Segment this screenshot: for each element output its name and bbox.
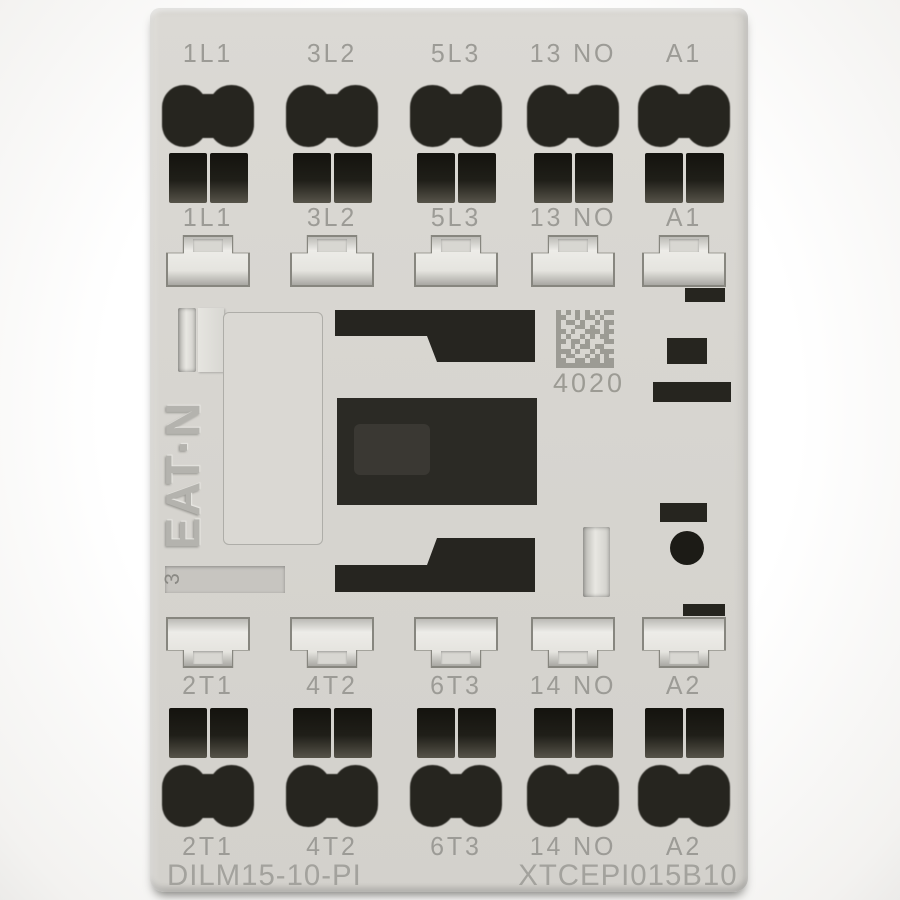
top-clip-labels-row: 1L1 3L2 5L3 13 NO A1: [150, 202, 748, 232]
push-in-opening: [686, 708, 724, 758]
clip-label-2t1: 2T1: [164, 670, 252, 700]
push-in-opening: [417, 708, 455, 758]
push-in-opening: [645, 153, 683, 203]
top-release-openings-row: [150, 153, 748, 203]
push-in-opening: [210, 153, 248, 203]
vent-mark: [660, 503, 707, 522]
terminal-label-a2: A2: [640, 831, 728, 861]
terminal-hole-pair: [638, 765, 730, 827]
bottom-conductor-holes-row: [150, 765, 748, 827]
push-in-opening: [293, 708, 331, 758]
clip-label-4t2: 4T2: [288, 670, 376, 700]
bottom-clip-labels-row: 2T1 4T2 6T3 14 NO A2: [150, 670, 748, 700]
hole-shape: [559, 94, 587, 138]
hole-shape: [559, 774, 587, 818]
hole-shape: [670, 94, 698, 138]
clip-notch: [441, 239, 471, 252]
terminal-release-clip: [531, 617, 615, 668]
terminal-label-6t3: 6T3: [412, 831, 500, 861]
vent-mark: [683, 604, 725, 616]
push-in-opening: [575, 153, 613, 203]
push-in-opening: [534, 153, 572, 203]
push-in-opening: [334, 708, 372, 758]
terminal-hole-pair: [410, 85, 502, 147]
data-matrix-code: [556, 310, 614, 368]
push-in-opening: [210, 708, 248, 758]
clip-notch: [317, 651, 347, 664]
terminal-release-clip: [414, 235, 498, 287]
hole-shape: [442, 774, 470, 818]
terminal-release-clip: [414, 617, 498, 668]
vent-mark: [685, 288, 725, 302]
push-in-opening: [645, 708, 683, 758]
marker-strip: 3: [165, 566, 285, 593]
terminal-hole-pair: [286, 85, 378, 147]
clip-notch: [193, 651, 223, 664]
marker-label: 3: [161, 573, 185, 585]
terminal-release-clip: [531, 235, 615, 287]
terminal-hole-pair: [527, 85, 619, 147]
clip-label-a1: A1: [640, 202, 728, 232]
clip-label-5l3: 5L3: [412, 202, 500, 232]
terminal-release-clip: [166, 617, 250, 668]
terminal-label-1l1: 1L1: [164, 38, 252, 68]
terminal-label-5l3: 5L3: [412, 38, 500, 68]
push-in-opening: [169, 153, 207, 203]
push-in-opening: [458, 708, 496, 758]
hole-shape: [194, 774, 222, 818]
clip-label-13no: 13 NO: [529, 202, 617, 232]
push-in-opening: [686, 153, 724, 203]
bottom-terminal-labels-row: 2T1 4T2 6T3 14 NO A2: [150, 831, 748, 859]
clip-notch: [441, 651, 471, 664]
bottom-clips-row: [150, 617, 748, 668]
clip-notch: [558, 239, 588, 252]
terminal-release-clip: [642, 617, 726, 668]
center-window: [337, 398, 537, 505]
terminal-hole-pair: [162, 85, 254, 147]
terminal-hole-pair: [286, 765, 378, 827]
arc-chute-slot-bottom: [335, 538, 535, 592]
center-window-inset: [354, 424, 430, 475]
push-in-opening: [169, 708, 207, 758]
terminal-hole-pair: [638, 85, 730, 147]
vent-slot: [178, 308, 196, 372]
push-in-opening: [293, 153, 331, 203]
top-conductor-holes-row: [150, 85, 748, 147]
terminal-label-2t1: 2T1: [164, 831, 252, 861]
clip-notch: [193, 239, 223, 252]
top-terminal-labels-row: 1L1 3L2 5L3 13 NO A1: [150, 38, 748, 68]
terminal-label-a1: A1: [640, 38, 728, 68]
catalog-number: XTCEPI015B10: [518, 859, 737, 893]
contactor-body: 1L1 3L2 5L3 13 NO A1 1L1 3L2 5L3 1: [150, 8, 748, 892]
nameplate-area: [223, 312, 323, 545]
photo-background: 1L1 3L2 5L3 13 NO A1 1L1 3L2 5L3 1: [0, 0, 900, 900]
clip-label-a2: A2: [640, 670, 728, 700]
molded-tab: [198, 308, 224, 372]
arc-chute-slot-top: [335, 310, 535, 362]
hole-shape: [670, 774, 698, 818]
clip-notch: [669, 239, 699, 252]
clip-notch: [669, 651, 699, 664]
clip-notch: [558, 651, 588, 664]
clip-notch: [317, 239, 347, 252]
vent-mark: [667, 338, 707, 364]
push-in-opening: [417, 153, 455, 203]
hole-shape: [318, 94, 346, 138]
vent-slot: [583, 527, 610, 597]
dmc-number: 4020: [553, 368, 625, 399]
bottom-release-openings-row: [150, 708, 748, 758]
vent-mark: [653, 382, 731, 402]
terminal-release-clip: [642, 235, 726, 287]
push-in-opening: [458, 153, 496, 203]
push-in-opening: [334, 153, 372, 203]
brand-logo-text: EAT·N: [157, 401, 212, 549]
clip-label-3l2: 3L2: [288, 202, 376, 232]
hole-shape: [442, 94, 470, 138]
terminal-label-13no: 13 NO: [529, 38, 617, 68]
terminal-label-14no: 14 NO: [529, 831, 617, 861]
terminal-hole-pair: [162, 765, 254, 827]
top-clips-row: [150, 235, 748, 287]
model-number: DILM15-10-PI: [167, 859, 362, 893]
terminal-label-4t2: 4T2: [288, 831, 376, 861]
clip-label-6t3: 6T3: [412, 670, 500, 700]
terminal-release-clip: [166, 235, 250, 287]
terminal-hole-pair: [410, 765, 502, 827]
terminal-release-clip: [290, 235, 374, 287]
push-in-opening: [575, 708, 613, 758]
hole-shape: [318, 774, 346, 818]
clip-label-14no: 14 NO: [529, 670, 617, 700]
hole-shape: [194, 94, 222, 138]
terminal-label-3l2: 3L2: [288, 38, 376, 68]
terminal-hole-pair: [527, 765, 619, 827]
push-in-opening: [534, 708, 572, 758]
terminal-release-clip: [290, 617, 374, 668]
brand-logo: EAT·N: [155, 383, 213, 568]
clip-label-1l1: 1L1: [164, 202, 252, 232]
coil-hole: [670, 531, 704, 565]
